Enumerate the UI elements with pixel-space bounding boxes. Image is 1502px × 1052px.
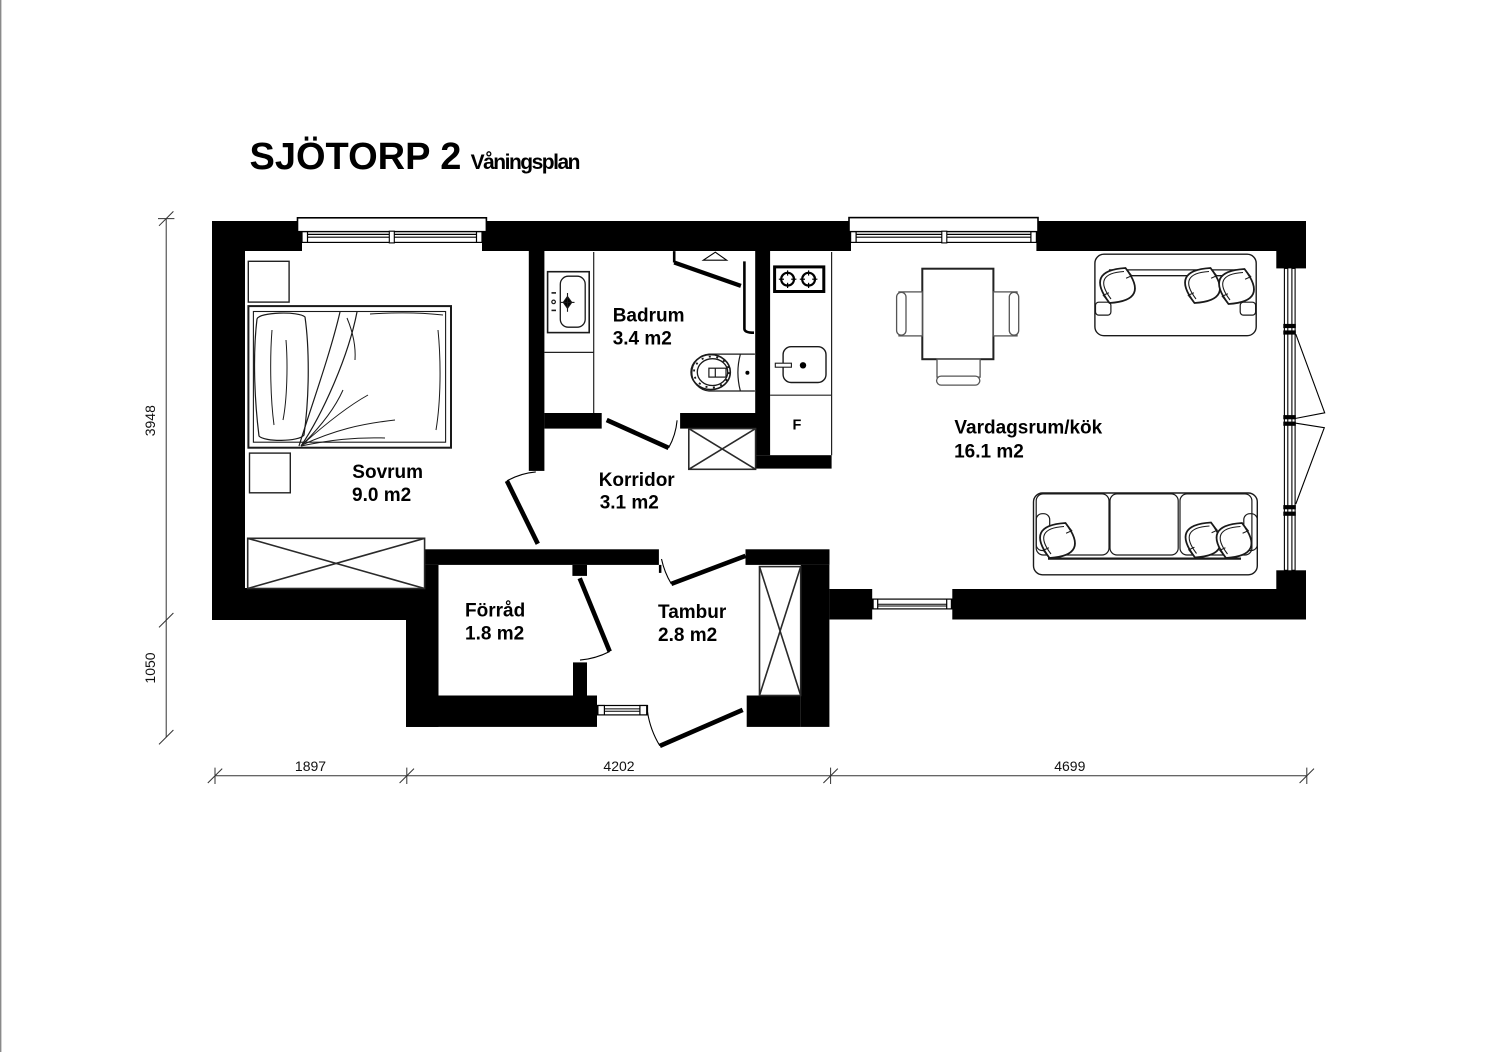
svg-text:Badrum: Badrum xyxy=(613,306,685,327)
svg-text:Våningsplan: Våningsplan xyxy=(471,151,580,174)
svg-text:Korridor: Korridor xyxy=(599,470,676,491)
svg-text:Vardagsrum/kök: Vardagsrum/kök xyxy=(954,417,1102,438)
svg-text:1050: 1050 xyxy=(142,652,158,683)
svg-text:4699: 4699 xyxy=(1054,758,1085,774)
svg-text:16.1 m2: 16.1 m2 xyxy=(954,442,1024,463)
svg-text:4202: 4202 xyxy=(603,758,634,774)
svg-text:3.4 m2: 3.4 m2 xyxy=(613,328,672,349)
svg-text:3.1 m2: 3.1 m2 xyxy=(600,493,659,514)
svg-text:SJÖTORP 2: SJÖTORP 2 xyxy=(250,135,462,178)
svg-text:F: F xyxy=(793,417,802,433)
svg-text:Förråd: Förråd xyxy=(465,601,525,622)
svg-text:3948: 3948 xyxy=(142,405,158,436)
svg-text:2.8 m2: 2.8 m2 xyxy=(658,625,717,646)
svg-text:1.8 m2: 1.8 m2 xyxy=(465,624,524,645)
svg-text:9.0 m2: 9.0 m2 xyxy=(352,485,411,506)
svg-text:Tambur: Tambur xyxy=(658,602,727,623)
svg-text:1897: 1897 xyxy=(295,758,326,774)
svg-text:Sovrum: Sovrum xyxy=(352,462,423,483)
